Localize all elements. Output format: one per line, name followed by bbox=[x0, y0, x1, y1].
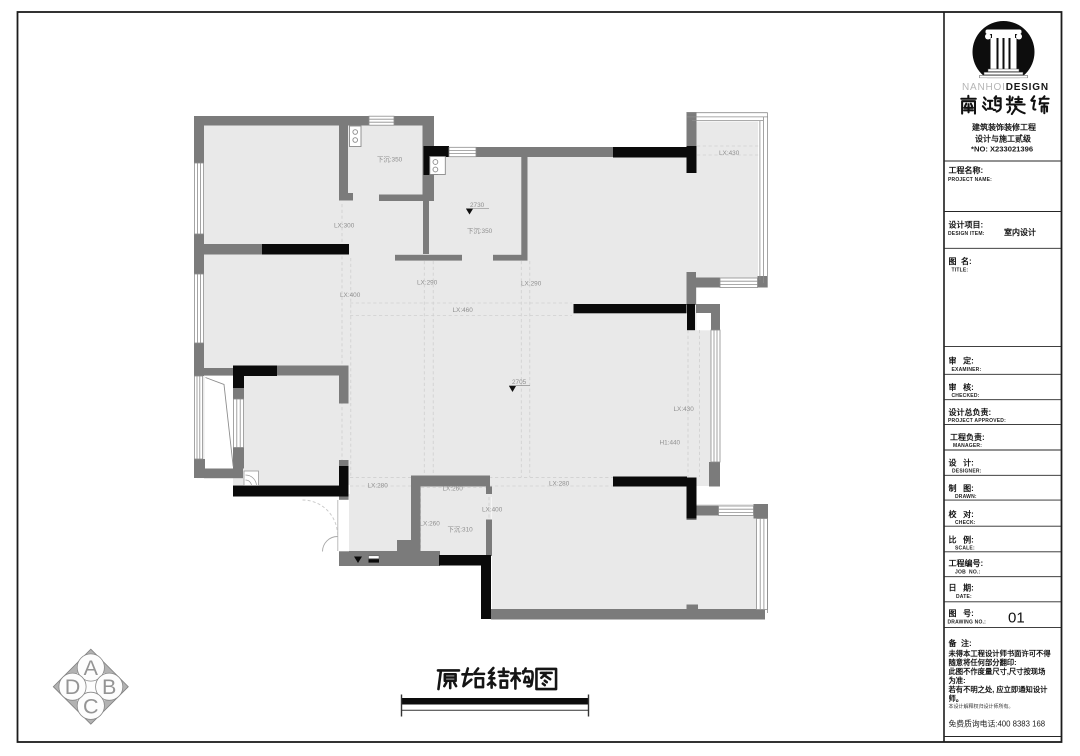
svg-text:设 计:: 设 计: bbox=[949, 458, 974, 468]
svg-text:为准:: 为准: bbox=[949, 676, 966, 685]
svg-text:制 图:: 制 图: bbox=[949, 483, 974, 493]
svg-text:CHECKED:: CHECKED: bbox=[952, 393, 980, 399]
svg-text:图 名:: 图 名: bbox=[949, 256, 972, 266]
svg-text:MANAGER:: MANAGER: bbox=[953, 443, 982, 449]
svg-text:备 注:: 备 注: bbox=[948, 638, 972, 648]
svg-text:未得本工程设计师书面许可不得: 未得本工程设计师书面许可不得 bbox=[948, 649, 1052, 658]
svg-text:LX:430: LX:430 bbox=[674, 406, 695, 413]
svg-text:PROJECT NAME:: PROJECT NAME: bbox=[948, 177, 992, 183]
svg-text:LX:460: LX:460 bbox=[453, 307, 474, 314]
svg-text:下沉:310: 下沉:310 bbox=[448, 526, 474, 534]
svg-text:NANHOIDESIGN: NANHOIDESIGN bbox=[962, 82, 1049, 93]
svg-text:师。: 师。 bbox=[949, 694, 964, 703]
svg-text:LX:400: LX:400 bbox=[482, 507, 503, 514]
svg-text:此图不作度量尺寸,尺寸按现场: 此图不作度量尺寸,尺寸按现场 bbox=[949, 667, 1046, 676]
svg-text:审 定:: 审 定: bbox=[949, 356, 974, 366]
svg-text:LX:280: LX:280 bbox=[549, 481, 570, 488]
svg-text:LX:260: LX:260 bbox=[443, 486, 464, 493]
svg-text:LX:260: LX:260 bbox=[420, 521, 441, 528]
svg-text:室内设计: 室内设计 bbox=[1004, 227, 1036, 237]
svg-text:比 例:: 比 例: bbox=[949, 535, 974, 545]
svg-text:LX:400: LX:400 bbox=[340, 292, 361, 299]
svg-text:LX:300: LX:300 bbox=[334, 223, 355, 230]
svg-text:设计与施工贰级: 设计与施工贰级 bbox=[975, 134, 1032, 144]
svg-text:DRAWN:: DRAWN: bbox=[955, 494, 977, 500]
svg-text:LX:280: LX:280 bbox=[368, 483, 389, 490]
svg-text:建筑装饰装修工程: 建筑装饰装修工程 bbox=[971, 122, 1036, 132]
svg-text:PROJECT APPROVED:: PROJECT APPROVED: bbox=[948, 418, 1006, 424]
svg-text:审 核:: 审 核: bbox=[949, 382, 974, 392]
svg-text:日 期:: 日 期: bbox=[949, 583, 974, 593]
svg-text:校 对:: 校 对: bbox=[949, 509, 974, 519]
svg-text:免费质询电话:400 8383 168: 免费质询电话:400 8383 168 bbox=[949, 719, 1046, 729]
svg-text:LX:290: LX:290 bbox=[417, 280, 438, 287]
svg-text:*NO: X233021396: *NO: X233021396 bbox=[971, 145, 1033, 154]
svg-text:LX:430: LX:430 bbox=[719, 150, 740, 157]
svg-text:SCALE:: SCALE: bbox=[955, 546, 975, 552]
svg-text:工程负责:: 工程负责: bbox=[950, 432, 985, 442]
svg-text:工程名称:: 工程名称: bbox=[949, 165, 984, 175]
svg-text:DATE:: DATE: bbox=[956, 594, 972, 600]
svg-text:DESIGN ITEM:: DESIGN ITEM: bbox=[948, 231, 985, 237]
svg-text:图 号:: 图 号: bbox=[949, 609, 974, 618]
svg-text:CHECK:: CHECK: bbox=[955, 520, 976, 526]
svg-text:若有不明之处, 应立即通知设计: 若有不明之处, 应立即通知设计 bbox=[948, 685, 1049, 694]
svg-text:B: B bbox=[102, 675, 116, 699]
svg-text:LX:290: LX:290 bbox=[521, 281, 542, 288]
svg-text:EXAMINER:: EXAMINER: bbox=[952, 367, 982, 373]
svg-text:JOB NO.:: JOB NO.: bbox=[955, 570, 981, 576]
svg-text:工程编号:: 工程编号: bbox=[949, 558, 984, 568]
svg-text:D: D bbox=[65, 675, 81, 699]
svg-text:设计总负责:: 设计总负责: bbox=[949, 407, 992, 417]
svg-text:H1:440: H1:440 bbox=[660, 440, 681, 447]
svg-text:01: 01 bbox=[1008, 610, 1025, 627]
svg-text:DRAWING NO.:: DRAWING NO.: bbox=[948, 619, 987, 625]
svg-text:TITLE:: TITLE: bbox=[952, 268, 969, 274]
svg-text:A: A bbox=[84, 656, 99, 680]
svg-text:下沉:350: 下沉:350 bbox=[377, 156, 403, 164]
svg-text:C: C bbox=[83, 694, 99, 718]
svg-text:本设计解释权归设计师所有。: 本设计解释权归设计师所有。 bbox=[949, 703, 1014, 710]
svg-text:设计项目:: 设计项目: bbox=[949, 220, 984, 230]
svg-text:2705: 2705 bbox=[512, 379, 527, 386]
svg-text:下沉:350: 下沉:350 bbox=[467, 227, 493, 235]
svg-text:随意将任何部分翻印:: 随意将任何部分翻印: bbox=[949, 658, 1017, 667]
svg-text:DESIGNER:: DESIGNER: bbox=[952, 469, 982, 475]
